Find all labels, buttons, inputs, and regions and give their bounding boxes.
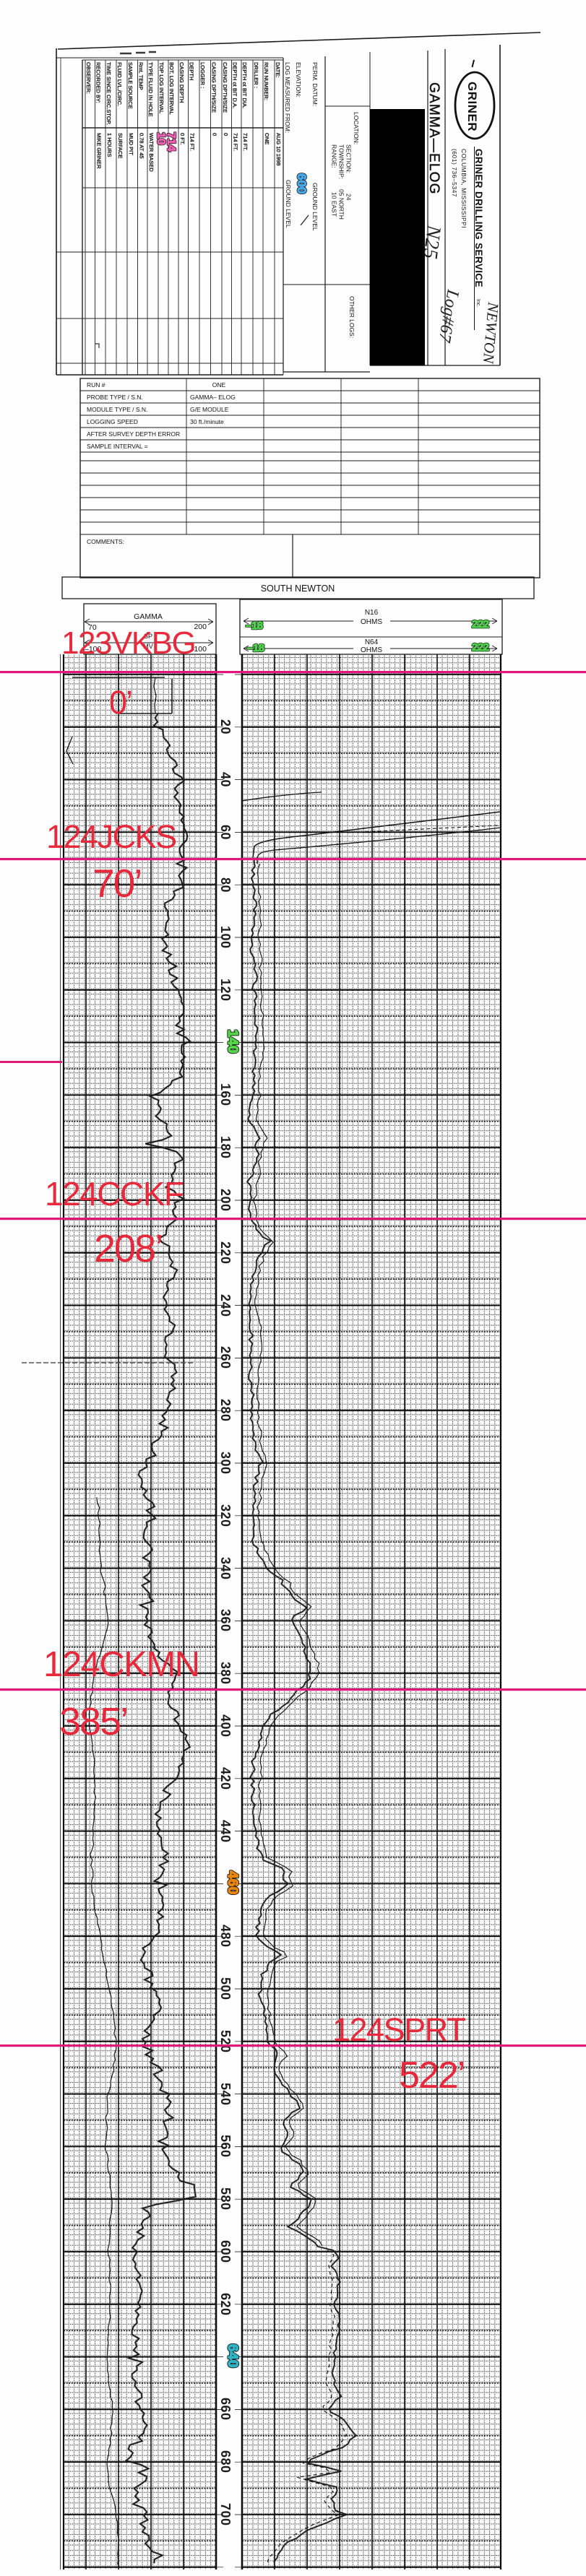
svg-text:124JCKS: 124JCKS xyxy=(46,818,176,855)
svg-text:COMMENTS:: COMMENTS: xyxy=(87,538,124,545)
svg-text:DRILLER :: DRILLER : xyxy=(253,62,259,88)
svg-text:560: 560 xyxy=(218,2135,233,2158)
svg-text:SAMPLE SOURCE: SAMPLE SOURCE xyxy=(127,62,134,109)
svg-text:BOT. LOG INTERVAL: BOT. LOG INTERVAL xyxy=(168,62,175,115)
svg-text:DEPTH ot BIT DIA.: DEPTH ot BIT DIA. xyxy=(241,62,248,108)
svg-text:660: 660 xyxy=(218,2398,233,2421)
svg-text:G/E MODULE: G/E MODULE xyxy=(190,406,229,413)
svg-text:MUD PIT: MUD PIT xyxy=(128,133,134,155)
svg-text:OHMS: OHMS xyxy=(361,618,382,626)
svg-text:Inc.: Inc. xyxy=(475,299,481,307)
svg-text:714 FT.: 714 FT. xyxy=(232,133,238,151)
svg-text:580: 580 xyxy=(218,2187,233,2211)
svg-text:480: 480 xyxy=(218,1925,233,1948)
svg-text:124CKMN: 124CKMN xyxy=(43,1645,199,1684)
svg-text:COLUMBIA, MISSISSIPPI: COLUMBIA, MISSISSIPPI xyxy=(460,149,467,228)
svg-text:0 FT.: 0 FT. xyxy=(179,133,186,145)
svg-text:AFTER SURVEY DEPTH ERROR: AFTER SURVEY DEPTH ERROR xyxy=(87,430,180,438)
svg-text:LOG MEASURED FROM:: LOG MEASURED FROM: xyxy=(284,62,291,133)
svg-text:220: 220 xyxy=(218,1241,233,1265)
svg-text:200: 200 xyxy=(194,623,207,631)
svg-text:500: 500 xyxy=(218,1977,233,2000)
svg-text:CASING DPTH/SIZE: CASING DPTH/SIZE xyxy=(211,62,217,113)
svg-text:40: 40 xyxy=(218,772,233,787)
svg-text:TOWNSHIP:: TOWNSHIP: xyxy=(338,144,345,179)
svg-text:640: 640 xyxy=(225,2344,240,2368)
svg-text:208’: 208’ xyxy=(94,1227,162,1270)
svg-text:0.78 AT 45: 0.78 AT 45 xyxy=(138,133,145,159)
svg-text:540: 540 xyxy=(218,2083,233,2106)
svg-text:222: 222 xyxy=(472,618,489,630)
svg-text:120: 120 xyxy=(218,979,233,1002)
svg-text:300: 300 xyxy=(218,1452,233,1475)
svg-text:GAMMA—ELOG: GAMMA—ELOG xyxy=(426,82,441,195)
svg-text:0: 0 xyxy=(211,133,217,136)
svg-text:RECORDED BY:: RECORDED BY: xyxy=(95,62,102,103)
svg-text:PERM. DATUM:: PERM. DATUM: xyxy=(311,62,319,106)
svg-text:–18: –18 xyxy=(246,620,263,632)
svg-text:SAMPLE INTERVAL =: SAMPLE INTERVAL = xyxy=(87,443,148,450)
svg-text:70’: 70’ xyxy=(92,861,141,906)
svg-text:714 FT.: 714 FT. xyxy=(242,133,249,151)
svg-text:260: 260 xyxy=(218,1346,233,1369)
svg-text:1 HOURS: 1 HOURS xyxy=(106,133,113,157)
svg-text:TOP LOG INTERVAL: TOP LOG INTERVAL xyxy=(158,62,165,113)
svg-text:700: 700 xyxy=(218,2503,233,2526)
svg-text:30 ft./minute: 30 ft./minute xyxy=(190,418,224,425)
svg-text:OTHER LOGS:: OTHER LOGS: xyxy=(348,296,356,338)
svg-text:385’: 385’ xyxy=(59,1700,127,1743)
svg-text:0: 0 xyxy=(223,133,229,136)
svg-text:680: 680 xyxy=(218,2450,233,2473)
svg-text:MODULE TYPE / S.N.: MODULE TYPE / S.N. xyxy=(87,406,147,413)
svg-text:Rmt. TEMP: Rmt. TEMP xyxy=(138,62,145,90)
svg-text:DATE:: DATE: xyxy=(275,62,281,78)
svg-text:MIKE GRINER: MIKE GRINER xyxy=(95,133,102,169)
svg-text:LOCATION:: LOCATION: xyxy=(353,112,360,144)
svg-text:24: 24 xyxy=(345,194,353,201)
svg-text:420: 420 xyxy=(218,1767,233,1790)
svg-text:OHMS: OHMS xyxy=(361,646,382,654)
svg-text:–18: –18 xyxy=(247,642,264,654)
svg-text:600: 600 xyxy=(218,2240,233,2263)
svg-text:DEPTH: DEPTH xyxy=(189,62,195,80)
svg-text:320: 320 xyxy=(218,1504,233,1527)
svg-text:400: 400 xyxy=(218,1714,233,1738)
svg-text:280: 280 xyxy=(218,1399,233,1422)
svg-text:124CCKF: 124CCKF xyxy=(45,1175,184,1213)
svg-text:RANGE:: RANGE: xyxy=(331,144,338,168)
svg-text:80: 80 xyxy=(218,877,233,893)
svg-text:PROBE TYPE / S.N.: PROBE TYPE / S.N. xyxy=(87,394,143,401)
svg-text:440: 440 xyxy=(218,1820,233,1843)
svg-text:180: 180 xyxy=(218,1136,233,1159)
svg-text:714: 714 xyxy=(165,132,177,152)
svg-text:LOGGER :: LOGGER : xyxy=(199,62,206,88)
svg-text:714 FT.: 714 FT. xyxy=(189,133,195,151)
svg-text:N25: N25 xyxy=(418,223,445,260)
svg-text:340: 340 xyxy=(218,1557,233,1580)
svg-text:TYPE FLUID IN HOLE: TYPE FLUID IN HOLE xyxy=(147,62,154,116)
svg-text:600: 600 xyxy=(295,173,309,194)
svg-text:ONE: ONE xyxy=(264,133,270,144)
svg-text:60: 60 xyxy=(218,825,233,840)
svg-text:(601) 736–5347: (601) 736–5347 xyxy=(451,149,458,197)
svg-text:140: 140 xyxy=(225,1030,240,1054)
svg-text:620: 620 xyxy=(218,2293,233,2316)
svg-text:TIME SINCE CIRC.STOP.: TIME SINCE CIRC.STOP. xyxy=(105,62,112,125)
svg-text:222: 222 xyxy=(472,641,489,654)
svg-text:SURFACE: SURFACE xyxy=(117,133,124,158)
svg-text:GROUND LEVEL: GROUND LEVEL xyxy=(311,183,319,231)
svg-text:GROUND LEVEL: GROUND LEVEL xyxy=(285,180,292,228)
svg-text:CASING DEPTH: CASING DEPTH xyxy=(178,62,185,103)
svg-text:100: 100 xyxy=(194,645,207,654)
svg-text:160: 160 xyxy=(218,1083,233,1106)
svg-text:380: 380 xyxy=(218,1662,233,1685)
svg-text:GRINER: GRINER xyxy=(465,82,479,131)
svg-text:ONE: ONE xyxy=(212,381,226,389)
svg-text:RUN NUMBER:: RUN NUMBER: xyxy=(263,62,270,100)
svg-text:520: 520 xyxy=(218,2030,233,2053)
svg-text:SECTION:: SECTION: xyxy=(345,144,353,173)
svg-text:200: 200 xyxy=(218,1189,233,1212)
svg-text:GRINER DRILLING SERVICE: GRINER DRILLING SERVICE xyxy=(473,149,484,287)
svg-text:522’: 522’ xyxy=(399,2055,464,2096)
svg-text:DEPTH ot BIT D.A.: DEPTH ot BIT D.A. xyxy=(232,62,238,108)
svg-text:20: 20 xyxy=(218,719,233,734)
svg-text:10 EAST: 10 EAST xyxy=(331,192,338,217)
svg-text:240: 240 xyxy=(218,1294,233,1317)
svg-text:0’: 0’ xyxy=(109,684,132,721)
svg-text:GAMMA– ELOG: GAMMA– ELOG xyxy=(190,394,236,401)
svg-text:460: 460 xyxy=(225,1871,240,1895)
svg-text:AUG 10 1998: AUG 10 1998 xyxy=(275,133,282,165)
svg-text:OBSERVER:: OBSERVER: xyxy=(85,62,92,94)
svg-text:CASING DPTH/SIZE: CASING DPTH/SIZE xyxy=(222,62,228,113)
svg-text:WATER BASED: WATER BASED xyxy=(148,133,155,172)
svg-text:RUN #: RUN # xyxy=(87,381,105,389)
svg-text:GAMMA: GAMMA xyxy=(134,612,163,621)
svg-text:LOGGING SPEED: LOGGING SPEED xyxy=(87,418,138,425)
svg-text:124SPRT: 124SPRT xyxy=(332,2011,466,2048)
svg-text:FLUID LVL./CIRC.: FLUID LVL./CIRC. xyxy=(116,62,123,106)
svg-text:ELEVATION:: ELEVATION: xyxy=(295,62,302,97)
svg-text:N16: N16 xyxy=(365,609,379,617)
svg-text:SOUTH NEWTON: SOUTH NEWTON xyxy=(261,584,335,594)
svg-text:N64: N64 xyxy=(365,638,379,646)
svg-text:123VKBG: 123VKBG xyxy=(61,625,195,661)
svg-text:05 NORTH: 05 NORTH xyxy=(338,189,345,220)
svg-text:100: 100 xyxy=(218,926,233,949)
svg-text:360: 360 xyxy=(218,1609,233,1632)
